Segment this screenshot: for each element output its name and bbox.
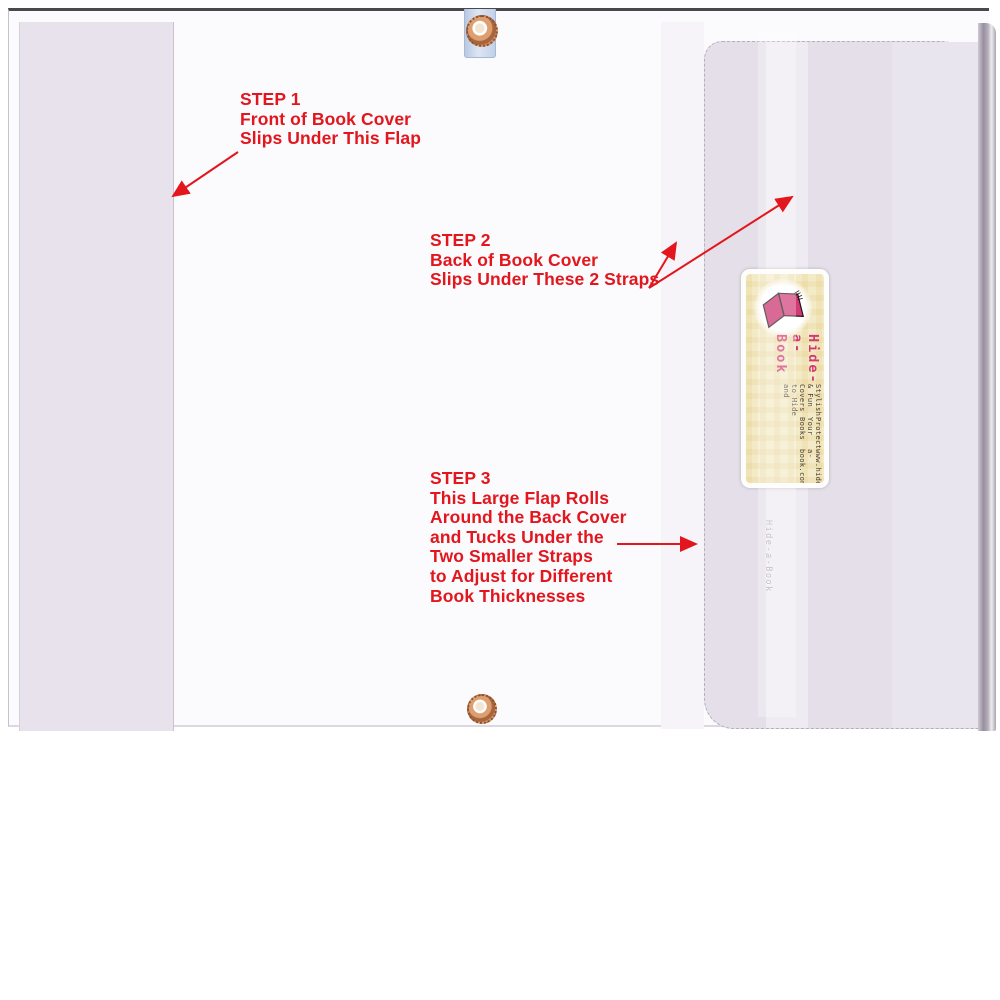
step3-annotation: STEP 3 This Large Flap Rolls Around the …: [430, 469, 627, 606]
step3-line6: Book Thicknesses: [430, 587, 627, 607]
step3-line5: to Adjust for Different: [430, 567, 627, 587]
step2-line1: Back of Book Cover: [430, 251, 659, 271]
step1-line2: Slips Under This Flap: [240, 129, 421, 149]
embossed-flap-label: Hide-a-Book: [763, 520, 773, 606]
copper-eyelet-icon-bottom: [467, 694, 497, 724]
step2-line2: Slips Under These 2 Straps: [430, 270, 659, 290]
step1-annotation: STEP 1 Front of Book Cover Slips Under T…: [240, 90, 421, 149]
step2-annotation: STEP 2 Back of Book Cover Slips Under Th…: [430, 231, 659, 290]
step3-line4: Two Smaller Straps: [430, 547, 627, 567]
copper-eyelet-icon-top: [466, 15, 498, 47]
left-flap-panel: [19, 22, 174, 731]
step3-line2: Around the Back Cover: [430, 508, 627, 528]
step1-line1: Front of Book Cover: [240, 110, 421, 130]
paper-edge-strip: [661, 22, 704, 729]
cover-spine-edge: [978, 23, 996, 731]
step2-title: STEP 2: [430, 231, 659, 251]
clear-strap-right: [892, 42, 980, 728]
instruction-photo: Hide-a-Book Stylish & Fun Covers to Hide…: [0, 0, 1000, 1000]
clear-strap-overlay: [758, 31, 796, 717]
book-cover-product: [8, 8, 989, 727]
step1-title: STEP 1: [240, 90, 421, 110]
step3-line3: and Tucks Under the: [430, 528, 627, 548]
step3-title: STEP 3: [430, 469, 627, 489]
step3-line1: This Large Flap Rolls: [430, 489, 627, 509]
